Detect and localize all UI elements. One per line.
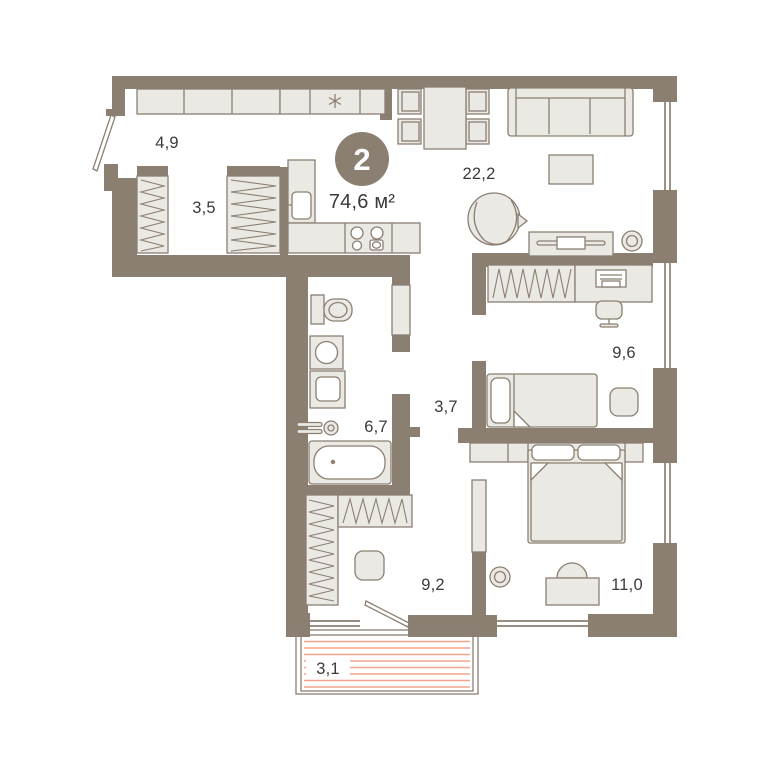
wall-corridor-bedroom-a — [472, 267, 486, 315]
bed-double — [528, 445, 625, 543]
wall-bath-bottom — [286, 485, 410, 495]
hall-cabinet-row — [137, 89, 280, 114]
wall-between-bedrooms — [458, 428, 653, 443]
wall-hall-master — [472, 552, 486, 617]
window-master-bottom — [497, 621, 588, 626]
pier-top-right — [653, 76, 677, 102]
wall-bath-right-a — [392, 255, 410, 285]
pillow — [491, 378, 510, 423]
balcony-door-leaf — [365, 601, 409, 627]
apartment-badge: 2 74,6 м² — [329, 132, 395, 213]
window-bedroom-master — [665, 463, 670, 543]
area-corridor: 3,7 — [434, 398, 458, 416]
floor-plan: 2 74,6 м² 4,9 3,5 22,2 9,6 3,7 6,7 9,2 1… — [0, 0, 768, 768]
computer-icon — [596, 270, 626, 287]
wall-top — [112, 76, 677, 89]
duct-shaft — [392, 285, 410, 335]
area-wardrobe-hall: 3,5 — [192, 199, 216, 217]
wall-bath-right-c — [392, 394, 410, 485]
dressing-table — [546, 563, 599, 605]
wall-bath-right-b — [392, 335, 410, 352]
wardrobe-hall-vertical — [306, 495, 338, 605]
dining-set — [398, 87, 489, 149]
dining-table — [424, 87, 466, 149]
pouf-hall — [355, 551, 384, 580]
stool-master — [490, 567, 510, 587]
wall-left-35 — [112, 178, 137, 267]
kitchen-counter — [288, 223, 420, 253]
wardrobe-hall-horizontal — [338, 495, 412, 527]
wardrobe-right — [227, 176, 280, 253]
kitchen-sink-unit — [283, 160, 315, 223]
toilet — [311, 295, 352, 324]
badge-rooms-count: 2 — [353, 142, 370, 177]
entry-door-leaf — [93, 115, 115, 171]
wardrobe-left — [137, 176, 168, 253]
wardrobe-cap-right — [227, 166, 280, 176]
desk-chair — [596, 301, 622, 327]
area-inner-hall: 9,2 — [421, 576, 445, 594]
kitchen-cabinet-row — [280, 89, 385, 114]
window-living — [665, 102, 670, 190]
coffee-table — [549, 155, 593, 184]
hall-cabinets — [137, 89, 280, 114]
area-balcony: 3,1 — [316, 660, 340, 678]
pillow — [532, 445, 574, 460]
area-bathroom: 6,7 — [364, 418, 388, 436]
washbasin — [310, 336, 343, 369]
wall-bath-right-notch — [410, 427, 420, 437]
bathtub — [309, 441, 391, 484]
wall-balcony-right — [408, 615, 462, 637]
wall-bottom-master — [588, 614, 663, 637]
kitchen-top-cabinets — [280, 89, 385, 114]
window-balcony-threshold — [310, 621, 360, 626]
area-bedroom-master: 11,0 — [611, 576, 643, 594]
area-entry-hall: 4,9 — [155, 134, 179, 152]
sofa — [508, 88, 633, 136]
plant-living — [622, 231, 642, 251]
partition-panel — [472, 480, 486, 552]
floor-plan-page: 2 74,6 м² 4,9 3,5 22,2 9,6 3,7 6,7 9,2 1… — [0, 0, 768, 768]
bed-single — [487, 374, 597, 427]
pillow — [578, 445, 620, 460]
wall-band-south-of-kitchen — [112, 255, 410, 277]
tv-stand — [529, 232, 613, 256]
wardrobe-bedroom-small — [488, 265, 575, 302]
wall-corridor-bedroom-b — [472, 361, 486, 428]
wardrobe-cap-left — [137, 166, 168, 176]
drain — [331, 460, 335, 464]
washing-machine — [310, 371, 345, 408]
pier-right-2 — [653, 368, 677, 463]
area-living-kitchen: 22,2 — [463, 165, 496, 183]
armchair — [468, 193, 527, 245]
window-bedroom-small — [665, 263, 670, 368]
area-bedroom-small: 9,6 — [612, 344, 636, 362]
wall-35-kitchen — [280, 167, 288, 257]
desk — [575, 265, 652, 327]
dressing-stool — [557, 563, 587, 578]
corner-west-bottom — [286, 613, 310, 637]
pouf-bedroom-small — [610, 388, 638, 416]
pier-right-1 — [653, 190, 677, 263]
total-area-label: 74,6 м² — [329, 191, 395, 213]
